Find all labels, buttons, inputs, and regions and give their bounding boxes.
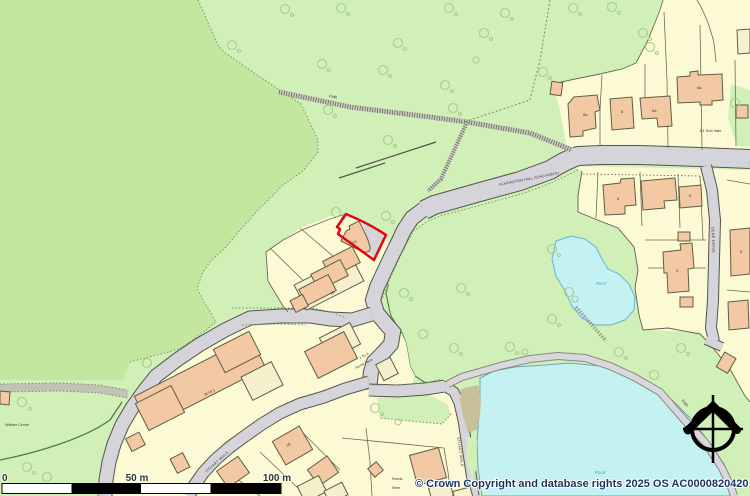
svg-text:Reeds: Reeds (392, 477, 403, 481)
svg-text:100 m: 100 m (263, 473, 291, 484)
svg-text:8a: 8a (652, 108, 657, 113)
svg-text:0: 0 (2, 473, 8, 484)
svg-text:Pond: Pond (595, 470, 606, 475)
svg-text:81 Sub Vale: 81 Sub Vale (700, 128, 722, 133)
svg-text:6a: 6a (697, 85, 702, 90)
svg-text:© Crown Copyright and database: © Crown Copyright and database rights 20… (415, 478, 749, 490)
svg-text:Pond: Pond (596, 281, 607, 286)
svg-text:8a: 8a (583, 112, 588, 117)
svg-text:Welfare Centre: Welfare Centre (5, 423, 29, 427)
svg-text:Mere: Mere (392, 486, 400, 490)
svg-text:50 m: 50 m (126, 473, 149, 484)
